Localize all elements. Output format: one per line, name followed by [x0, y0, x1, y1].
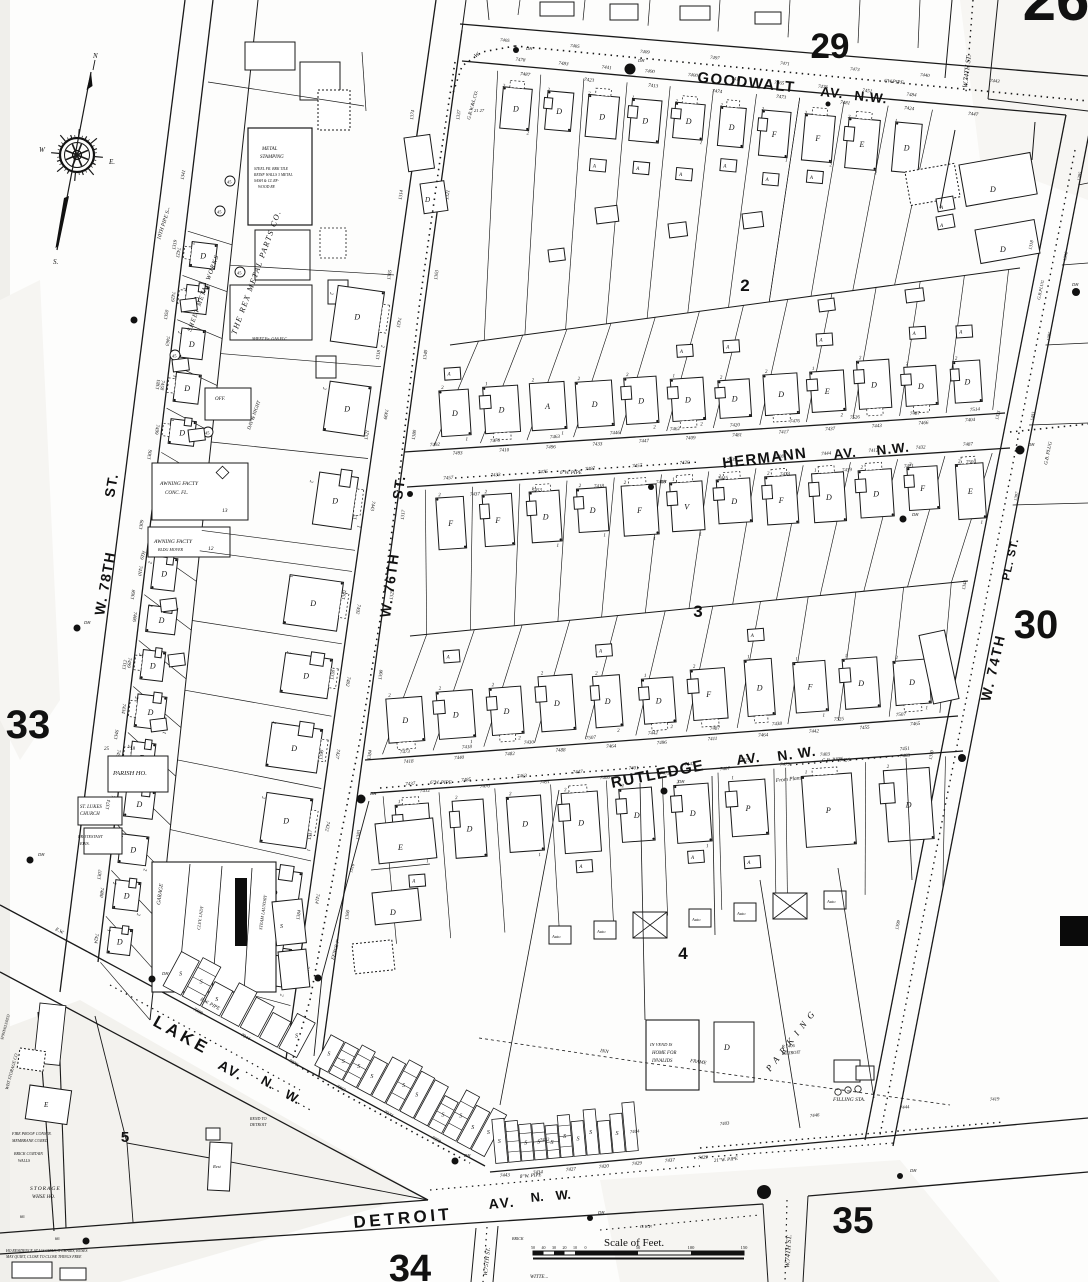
svg-text:DH: DH	[369, 791, 377, 796]
svg-text:E: E	[967, 487, 973, 496]
svg-text:1: 1	[556, 544, 559, 549]
svg-text:1: 1	[845, 654, 848, 659]
svg-text:D: D	[872, 489, 879, 498]
svg-text:7444: 7444	[821, 452, 832, 458]
svg-text:1: 1	[925, 706, 928, 711]
svg-text:3: 3	[693, 602, 702, 621]
svg-text:7447: 7447	[684, 762, 695, 768]
svg-text:E: E	[859, 140, 865, 149]
svg-text:7481: 7481	[840, 101, 850, 107]
svg-text:34: 34	[389, 1248, 431, 1282]
svg-text:E: E	[824, 387, 830, 396]
svg-text:7447: 7447	[639, 439, 650, 445]
svg-text:7432: 7432	[916, 445, 927, 451]
svg-text:7443: 7443	[872, 424, 883, 430]
svg-text:7438: 7438	[772, 722, 783, 728]
svg-text:D: D	[756, 684, 763, 693]
svg-text:D: D	[591, 400, 598, 409]
svg-text:7440: 7440	[920, 73, 931, 79]
svg-text:7491: 7491	[540, 780, 550, 786]
svg-text:BRICK CURTAIN: BRICK CURTAIN	[14, 1151, 43, 1156]
svg-text:1: 1	[822, 714, 825, 719]
svg-text:21 27: 21 27	[474, 108, 485, 113]
svg-text:E.: E.	[108, 158, 115, 166]
svg-text:10: 10	[573, 1245, 577, 1250]
svg-text:D: D	[684, 395, 691, 404]
svg-text:S: S	[402, 1083, 405, 1089]
svg-text:30: 30	[552, 1245, 556, 1250]
svg-text:7455: 7455	[859, 726, 870, 732]
svg-text:7476: 7476	[790, 419, 801, 425]
svg-text:7446: 7446	[610, 431, 621, 437]
svg-text:7418: 7418	[403, 759, 414, 765]
svg-text:D: D	[424, 196, 430, 204]
svg-text:7514: 7514	[970, 407, 981, 413]
svg-text:S: S	[589, 1130, 592, 1136]
svg-text:20: 20	[563, 1245, 567, 1250]
svg-text:D: D	[183, 384, 190, 393]
svg-text:F: F	[447, 519, 453, 528]
svg-text:HOME FOR: HOME FOR	[651, 1051, 676, 1056]
svg-text:D: D	[466, 825, 473, 834]
svg-text:18: 18	[130, 747, 136, 752]
svg-text:F: F	[636, 506, 642, 515]
svg-text:7481: 7481	[732, 433, 742, 439]
svg-text:D: D	[825, 493, 832, 502]
svg-text:7487: 7487	[910, 411, 921, 417]
svg-text:S: S	[280, 924, 283, 930]
svg-text:WALLS: WALLS	[18, 1158, 30, 1163]
svg-text:PROTESTANT: PROTESTANT	[77, 834, 103, 839]
svg-text:D: D	[129, 846, 136, 855]
svg-text:D: D	[730, 497, 737, 506]
svg-text:D: D	[149, 662, 156, 671]
svg-text:CHURCH: CHURCH	[80, 812, 100, 817]
svg-text:D: D	[685, 117, 692, 126]
svg-text:SASH & CL RF-: SASH & CL RF-	[254, 179, 280, 183]
svg-text:1: 1	[894, 119, 897, 124]
svg-text:7443: 7443	[500, 1173, 511, 1179]
svg-text:1: 1	[795, 657, 798, 662]
svg-text:P: P	[745, 804, 751, 813]
svg-text:1: 1	[644, 674, 647, 679]
svg-text:WOOD RF.: WOOD RF.	[258, 185, 276, 189]
svg-text:P: P	[825, 806, 831, 815]
svg-text:7420: 7420	[599, 1164, 610, 1170]
svg-text:7473: 7473	[400, 750, 411, 756]
svg-text:1: 1	[805, 770, 808, 775]
svg-text:4: 4	[678, 944, 688, 963]
svg-text:6''W. PIPE: 6''W. PIPE	[560, 471, 582, 476]
svg-text:D: D	[857, 679, 864, 688]
svg-text:7492: 7492	[430, 443, 441, 449]
svg-text:66: 66	[55, 1236, 60, 1241]
svg-text:7437: 7437	[825, 427, 836, 433]
svg-text:50: 50	[531, 1245, 535, 1250]
svg-text:1: 1	[785, 159, 788, 164]
svg-text:D: D	[158, 616, 165, 625]
svg-text:DH: DH	[637, 58, 645, 63]
svg-text:7457: 7457	[632, 464, 643, 470]
svg-text:7420: 7420	[679, 461, 690, 467]
svg-text:D: D	[188, 340, 195, 349]
svg-text:7404: 7404	[965, 418, 976, 424]
svg-text:S: S	[471, 1125, 474, 1131]
svg-text:D: D	[731, 395, 738, 404]
svg-text:7457: 7457	[443, 476, 454, 482]
svg-text:1: 1	[812, 367, 815, 372]
svg-text:7471: 7471	[780, 62, 790, 68]
svg-text:D: D	[777, 390, 784, 399]
svg-text:7420: 7420	[730, 423, 741, 429]
svg-text:7410: 7410	[499, 448, 510, 454]
svg-text:D: D	[452, 711, 459, 720]
svg-text:D: D	[553, 699, 560, 708]
svg-text:E: E	[43, 1101, 49, 1109]
svg-text:D: D	[309, 599, 316, 608]
svg-text:7429: 7429	[740, 758, 751, 764]
svg-text:7430: 7430	[524, 740, 535, 746]
svg-text:D: D	[999, 245, 1006, 254]
svg-text:D: D	[870, 380, 877, 389]
svg-text:REND TO: REND TO	[249, 1116, 267, 1121]
svg-text:7415: 7415	[718, 476, 729, 482]
svg-text:D: D	[136, 800, 143, 809]
svg-text:BLDG MOVER: BLDG MOVER	[158, 547, 184, 552]
svg-text:50: 50	[636, 1245, 641, 1250]
svg-text:REINF WALLS 3 METAL: REINF WALLS 3 METAL	[253, 173, 293, 177]
svg-text:DH: DH	[1027, 442, 1035, 447]
svg-text:7504: 7504	[966, 460, 977, 466]
svg-text:DH: DH	[83, 620, 91, 625]
svg-text:7476: 7476	[818, 85, 829, 91]
svg-text:66: 66	[20, 1214, 25, 1219]
svg-text:7464: 7464	[758, 733, 769, 739]
svg-text:7462: 7462	[670, 427, 681, 433]
svg-text:S: S	[498, 1139, 501, 1145]
svg-text:7426: 7426	[840, 758, 851, 764]
svg-text:7437: 7437	[405, 782, 416, 788]
svg-text:100: 100	[688, 1245, 696, 1250]
svg-text:STEEL FR. BRK TILE: STEEL FR. BRK TILE	[254, 167, 289, 171]
svg-text:Auto: Auto	[691, 917, 701, 922]
svg-text:1: 1	[653, 537, 656, 542]
svg-text:D: D	[637, 396, 644, 405]
svg-text:1: 1	[672, 478, 675, 483]
svg-text:7451: 7451	[862, 89, 872, 95]
svg-text:S: S	[441, 1113, 444, 1119]
svg-text:D: D	[903, 144, 910, 153]
svg-text:D: D	[498, 405, 505, 414]
svg-text:7472: 7472	[660, 771, 671, 777]
svg-text:7444: 7444	[900, 1105, 911, 1111]
svg-text:F: F	[814, 134, 820, 143]
svg-text:AWNING FACTY: AWNING FACTY	[159, 481, 199, 487]
svg-text:F: F	[807, 683, 813, 692]
svg-text:7443: 7443	[990, 79, 1001, 85]
svg-text:S: S	[215, 997, 218, 1003]
svg-text:6''W. PIPE: 6''W. PIPE	[430, 781, 452, 786]
svg-text:1: 1	[699, 141, 702, 146]
svg-text:D: D	[512, 105, 519, 114]
svg-text:Auto: Auto	[551, 934, 561, 939]
svg-text:D: D	[389, 908, 396, 917]
svg-text:S: S	[459, 1114, 462, 1120]
svg-text:D: D	[589, 506, 596, 515]
svg-text:1: 1	[603, 533, 606, 538]
svg-text:D: D	[521, 820, 528, 829]
svg-text:S: S	[524, 1140, 527, 1146]
svg-text:7408: 7408	[774, 455, 785, 461]
svg-text:7463: 7463	[550, 435, 561, 441]
svg-text:Auto: Auto	[736, 911, 746, 916]
svg-text:D: D	[116, 937, 123, 946]
svg-text:45: 45	[227, 180, 232, 185]
svg-text:7403: 7403	[820, 752, 831, 758]
svg-text:7417: 7417	[779, 430, 790, 436]
svg-text:D: D	[723, 1043, 730, 1052]
svg-text:7488: 7488	[555, 748, 566, 754]
svg-text:D: D	[331, 497, 338, 506]
svg-text:7507: 7507	[586, 736, 597, 742]
svg-text:S: S	[487, 1130, 490, 1136]
svg-text:D: D	[604, 697, 611, 706]
svg-text:7437: 7437	[665, 1158, 676, 1164]
svg-text:7418: 7418	[594, 484, 605, 490]
svg-text:S: S	[179, 971, 182, 977]
svg-text:7446: 7446	[810, 1113, 821, 1119]
svg-text:7442: 7442	[648, 731, 659, 737]
svg-text:N.: N.	[530, 1189, 544, 1205]
svg-text:7412: 7412	[868, 448, 879, 454]
svg-text:S: S	[577, 1137, 580, 1143]
svg-text:D: D	[633, 811, 640, 820]
svg-text:D: D	[908, 678, 915, 687]
svg-text:25: 25	[104, 747, 110, 752]
svg-text:D: D	[577, 818, 584, 827]
svg-text:S: S	[200, 980, 203, 986]
svg-text:Auto: Auto	[826, 899, 836, 904]
svg-text:7427: 7427	[566, 1167, 577, 1173]
svg-text:D: D	[401, 716, 408, 725]
svg-text:D: D	[302, 672, 309, 681]
svg-text:12: 12	[208, 546, 214, 552]
svg-text:7408: 7408	[600, 776, 611, 782]
svg-text:0: 0	[585, 1245, 587, 1250]
svg-text:45: 45	[237, 271, 242, 276]
svg-text:7478: 7478	[515, 58, 526, 64]
svg-text:G.W.P.: G.W.P.	[640, 1224, 652, 1229]
svg-text:AV.: AV.	[833, 445, 858, 462]
svg-text:S: S	[370, 1074, 373, 1080]
svg-text:1: 1	[706, 844, 709, 849]
svg-text:1: 1	[398, 800, 401, 805]
svg-text:Auto: Auto	[596, 929, 606, 934]
svg-text:7473: 7473	[850, 67, 861, 73]
svg-text:D: D	[964, 378, 971, 387]
svg-text:7429: 7429	[632, 1161, 643, 1167]
svg-text:7470: 7470	[480, 784, 491, 790]
svg-text:7407: 7407	[720, 767, 731, 773]
svg-text:7493: 7493	[453, 451, 464, 457]
svg-text:7429: 7429	[698, 1155, 709, 1161]
svg-text:D: D	[178, 429, 185, 438]
svg-text:F: F	[494, 516, 500, 525]
svg-text:1: 1	[981, 521, 984, 526]
svg-text:AV.: AV.	[488, 1194, 516, 1212]
svg-text:F: F	[771, 130, 777, 139]
svg-text:7442: 7442	[809, 729, 820, 735]
svg-text:WHSE HO.: WHSE HO.	[32, 1195, 55, 1200]
svg-text:ST.: ST.	[389, 474, 408, 501]
svg-text:7476: 7476	[490, 439, 501, 445]
svg-text:1: 1	[699, 533, 702, 538]
svg-text:D: D	[353, 313, 360, 322]
svg-text:D: D	[503, 707, 510, 716]
svg-text:7400: 7400	[688, 73, 699, 79]
svg-text:1: 1	[538, 853, 541, 858]
svg-text:7484: 7484	[906, 93, 917, 99]
svg-text:7479: 7479	[780, 762, 791, 768]
svg-text:7464: 7464	[606, 744, 617, 750]
svg-text:D: D	[555, 107, 562, 116]
svg-text:7490: 7490	[645, 69, 656, 75]
svg-text:S: S	[342, 1059, 345, 1065]
svg-text:METAL: METAL	[261, 147, 278, 152]
svg-text:F: F	[705, 690, 711, 699]
svg-text:1: 1	[672, 374, 675, 379]
svg-text:2: 2	[740, 276, 749, 295]
svg-text:AWNING FACTY: AWNING FACTY	[153, 539, 193, 545]
svg-text:DH: DH	[161, 971, 169, 976]
svg-text:MEMBRANE CURED: MEMBRANE CURED	[11, 1138, 48, 1143]
svg-text:S: S	[357, 1064, 360, 1070]
svg-text:26: 26	[1023, 0, 1088, 33]
svg-text:D: D	[542, 513, 549, 522]
svg-text:7434: 7434	[533, 1170, 544, 1176]
svg-text:7485: 7485	[570, 44, 581, 50]
svg-text:D: D	[728, 123, 735, 132]
svg-text:7496: 7496	[546, 445, 557, 451]
svg-text:S.: S.	[53, 258, 59, 266]
svg-text:1: 1	[731, 776, 734, 781]
svg-text:E: E	[397, 843, 403, 852]
svg-text:DH: DH	[463, 1153, 471, 1158]
svg-text:D: D	[123, 892, 130, 901]
svg-text:D: D	[147, 708, 154, 717]
svg-text:1: 1	[814, 469, 817, 474]
svg-text:A: A	[544, 402, 550, 411]
svg-text:DH: DH	[911, 512, 919, 517]
svg-text:D: D	[641, 117, 648, 126]
svg-text:S: S	[415, 1093, 418, 1099]
svg-text:7507: 7507	[896, 712, 907, 718]
svg-text:1: 1	[466, 437, 469, 442]
svg-text:D: D	[917, 382, 924, 391]
svg-text:33: 33	[6, 703, 51, 747]
svg-text:1: 1	[747, 655, 750, 660]
svg-text:7433: 7433	[592, 442, 603, 448]
svg-text:7466: 7466	[918, 421, 929, 427]
svg-text:DH: DH	[37, 852, 45, 857]
svg-text:7409: 7409	[640, 50, 651, 56]
svg-text:7440: 7440	[454, 756, 465, 762]
svg-text:7403: 7403	[720, 1121, 731, 1127]
svg-text:45: 45	[172, 354, 177, 359]
svg-text:STORAGE: STORAGE	[30, 1186, 61, 1192]
svg-text:WITTE...: WITTE...	[530, 1275, 548, 1280]
svg-text:DH: DH	[1071, 282, 1079, 287]
svg-text:D: D	[989, 185, 996, 194]
svg-text:7483: 7483	[558, 62, 569, 68]
svg-text:7442: 7442	[540, 1138, 551, 1144]
svg-text:29: 29	[811, 27, 850, 66]
svg-text:FIRE PROOF CONSTR.: FIRE PROOF CONSTR.	[11, 1131, 52, 1136]
svg-text:F: F	[919, 484, 925, 493]
svg-text:7409: 7409	[685, 436, 696, 442]
svg-text:D: D	[199, 252, 206, 261]
svg-text:7437: 7437	[470, 492, 481, 498]
svg-text:INVALIDS: INVALIDS	[651, 1059, 673, 1064]
svg-text:OFF.: OFF.	[215, 397, 226, 402]
svg-text:7482: 7482	[505, 752, 516, 758]
svg-text:S: S	[295, 1034, 298, 1040]
svg-text:7401: 7401	[628, 766, 638, 772]
svg-text:N: N	[92, 52, 98, 60]
svg-text:ST. LUKES: ST. LUKES	[80, 805, 102, 810]
svg-text:7451: 7451	[900, 747, 910, 753]
svg-text:7487: 7487	[710, 726, 721, 732]
svg-text:D: D	[282, 817, 289, 826]
svg-text:7453: 7453	[532, 488, 543, 494]
svg-text:DH: DH	[909, 1168, 917, 1173]
svg-text:D: D	[160, 570, 167, 579]
svg-text:7465: 7465	[910, 722, 921, 728]
svg-text:7419: 7419	[990, 1097, 1001, 1103]
svg-text:7497: 7497	[710, 56, 721, 62]
svg-text:D: D	[343, 405, 350, 414]
svg-text:7411: 7411	[708, 737, 718, 743]
svg-text:1: 1	[426, 859, 429, 864]
svg-text:FILLING STA.: FILLING STA.	[832, 1097, 865, 1103]
svg-text:7465: 7465	[774, 81, 785, 87]
svg-text:DH: DH	[597, 1210, 605, 1215]
svg-text:D: D	[655, 697, 662, 706]
svg-text:DH: DH	[525, 46, 533, 51]
svg-text:7473: 7473	[780, 472, 791, 478]
svg-text:DETROIT: DETROIT	[249, 1122, 267, 1127]
svg-text:7471: 7471	[904, 464, 914, 470]
svg-text:150: 150	[741, 1245, 749, 1250]
svg-text:7526: 7526	[850, 415, 861, 421]
svg-text:F: F	[778, 496, 784, 505]
svg-text:1: 1	[631, 96, 634, 101]
svg-text:S: S	[551, 1140, 554, 1146]
svg-text:D: D	[290, 744, 297, 753]
svg-text:EPIS.: EPIS.	[79, 841, 90, 846]
svg-text:D: D	[689, 809, 696, 818]
svg-text:IN VEND IS: IN VEND IS	[649, 1042, 673, 1047]
svg-text:D: D	[598, 113, 605, 122]
svg-text:DH: DH	[677, 779, 685, 784]
svg-text:1: 1	[485, 382, 488, 387]
svg-text:7487: 7487	[963, 442, 974, 448]
svg-text:7441: 7441	[601, 65, 611, 71]
svg-text:Rest: Rest	[212, 1164, 221, 1169]
svg-text:DH: DH	[659, 479, 667, 484]
svg-text:40: 40	[542, 1245, 546, 1250]
svg-text:30: 30	[1014, 603, 1059, 647]
